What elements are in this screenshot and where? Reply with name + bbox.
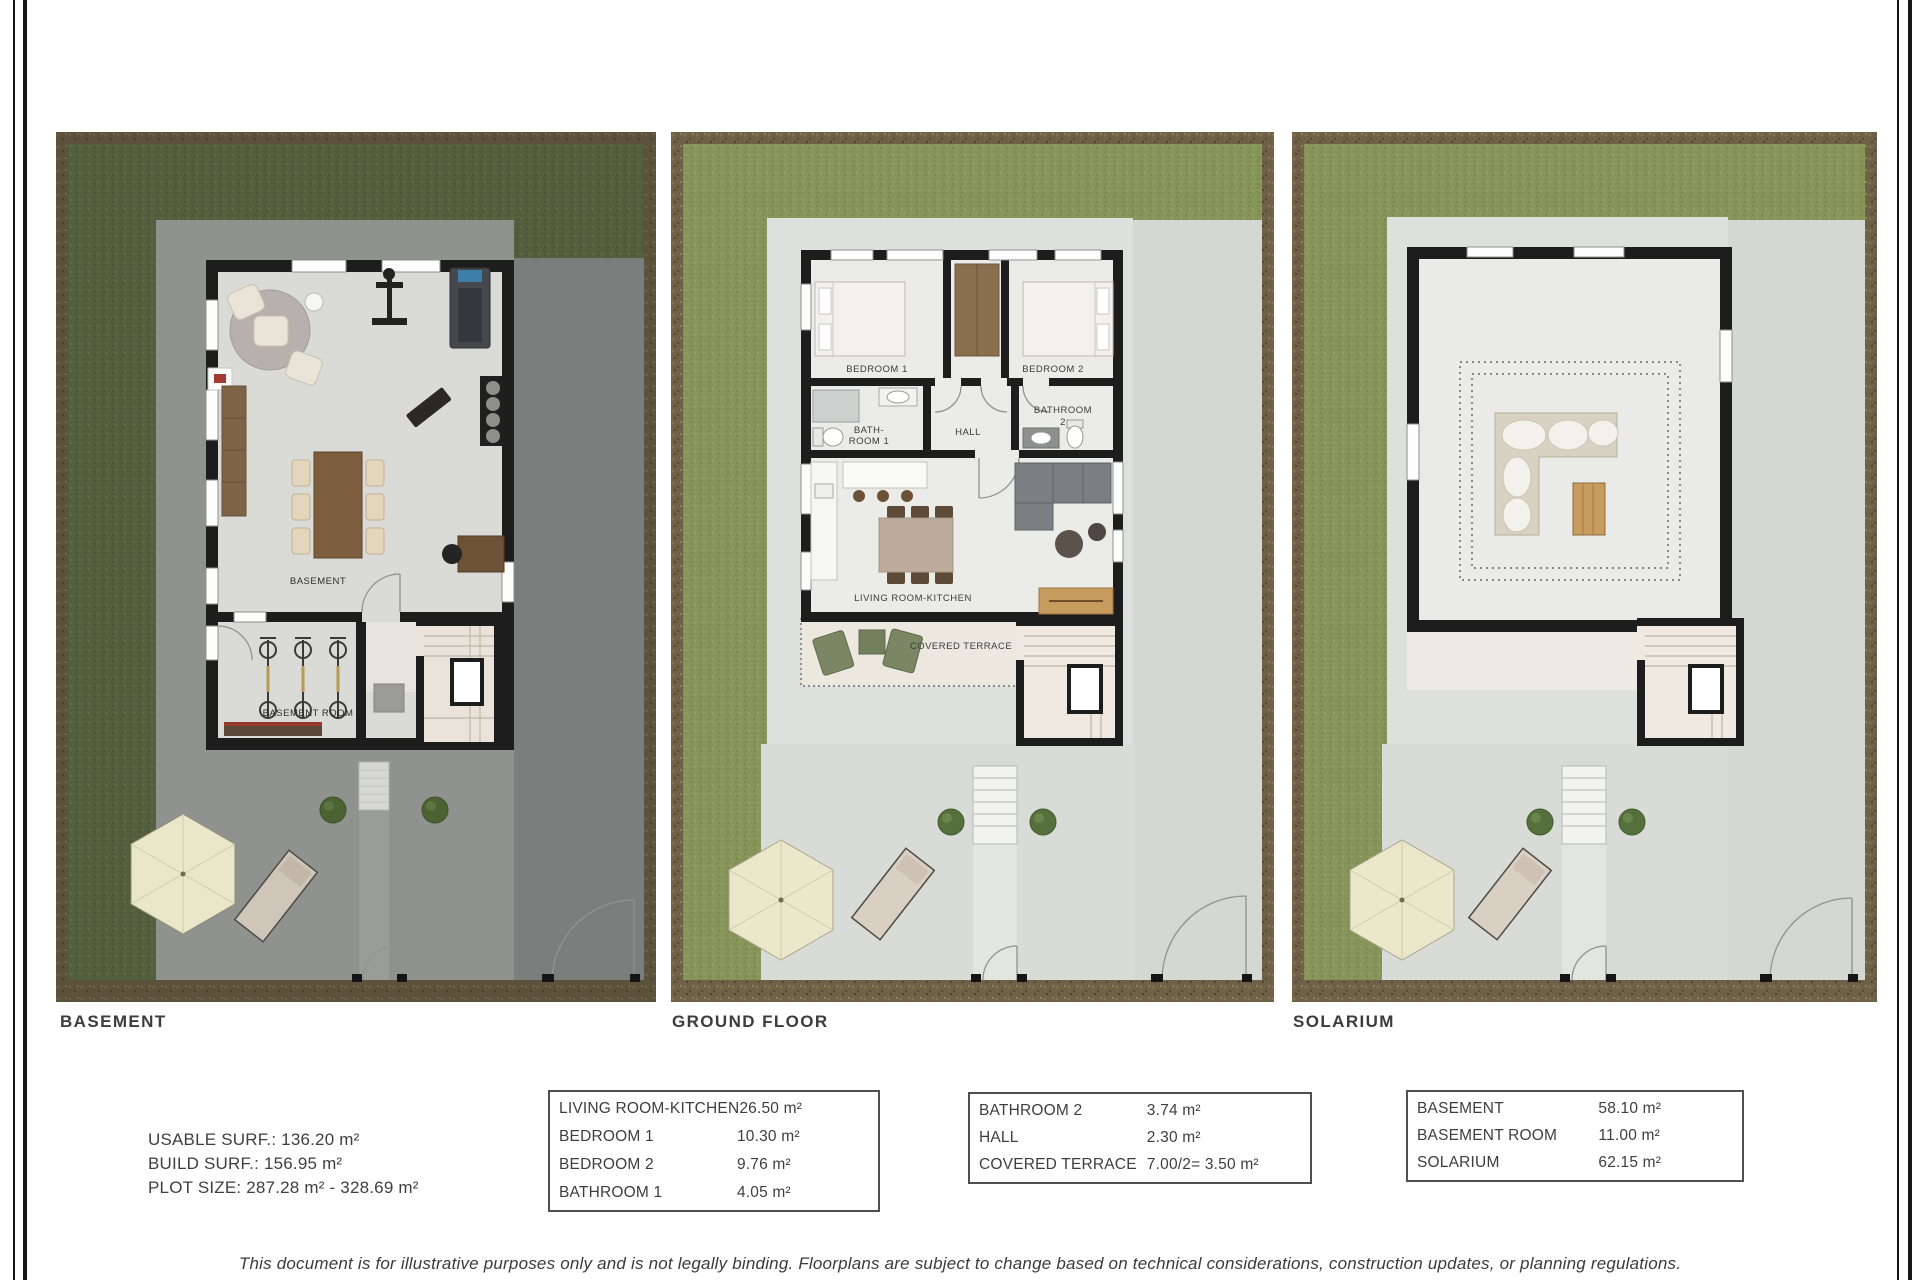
- armchair: [254, 316, 288, 346]
- terrace-table: [859, 630, 885, 654]
- room-label-bathroom2-line1: BATHROOM: [1034, 405, 1092, 416]
- caption-basement: BASEMENT: [60, 1012, 167, 1032]
- table-row: HALL2.30 m²: [970, 1129, 1310, 1147]
- table-row: BATHROOM 14.05 m²: [550, 1184, 878, 1202]
- solarium-floorplan-drawing: [1292, 132, 1877, 1002]
- ground-floor-area-table-2: BATHROOM 23.74 m² HALL2.30 m² COVERED TE…: [968, 1092, 1312, 1184]
- row-value: 3.74 m²: [1147, 1102, 1310, 1120]
- table-row: SOLARIUM62.15 m²: [1408, 1154, 1742, 1172]
- room-label-bathroom1-line1: BATH-: [854, 425, 884, 436]
- bush: [320, 797, 346, 823]
- driveway: [1728, 220, 1865, 980]
- outdoor-table: [1573, 483, 1605, 535]
- dining-set: [879, 506, 953, 584]
- row-value: 9.76 m²: [737, 1156, 878, 1174]
- stair-landing: [1069, 666, 1101, 712]
- row-label: BEDROOM 1: [550, 1128, 737, 1146]
- table-row: BEDROOM 29.76 m²: [550, 1156, 878, 1174]
- row-value: 10.30 m²: [737, 1128, 878, 1146]
- stairwell: [416, 618, 502, 750]
- walkway: [973, 844, 1017, 980]
- row-label: BEDROOM 2: [550, 1156, 737, 1174]
- room-label-hall: HALL: [955, 427, 981, 438]
- bush: [1030, 809, 1056, 835]
- driveway: [1133, 220, 1262, 980]
- wine-rack: [480, 376, 506, 446]
- basement-floorplan-drawing: BASEMENT BASEMENT ROOM: [56, 132, 656, 1002]
- row-value: 11.00 m²: [1598, 1127, 1742, 1145]
- row-value: 58.10 m²: [1598, 1100, 1742, 1118]
- room-label-bedroom1: BEDROOM 1: [846, 364, 908, 375]
- row-label: BASEMENT: [1408, 1100, 1598, 1118]
- room-label-bathroom2-line2: 2: [1060, 417, 1066, 428]
- bush: [422, 797, 448, 823]
- row-value: 2.30 m²: [1147, 1129, 1310, 1147]
- row-label: BASEMENT ROOM: [1408, 1127, 1598, 1145]
- row-value: 62.15 m²: [1598, 1154, 1742, 1172]
- row-label: COVERED TERRACE: [970, 1156, 1147, 1174]
- build-surface: BUILD SURF.: 156.95 m²: [148, 1152, 419, 1176]
- bush: [938, 809, 964, 835]
- surface-summary: USABLE SURF.: 136.20 m² BUILD SURF.: 156…: [148, 1128, 419, 1200]
- storage-box: [374, 684, 404, 712]
- treadmill: [450, 268, 490, 348]
- ground-floor-area-table: LIVING ROOM-KITCHEN26.50 m² BEDROOM 110.…: [548, 1090, 880, 1212]
- room-label-bedroom2: BEDROOM 2: [1022, 364, 1084, 375]
- legal-disclaimer: This document is for illustrative purpos…: [0, 1254, 1920, 1274]
- desk: [458, 536, 504, 572]
- room-label-basement: BASEMENT: [290, 576, 346, 587]
- bush: [1527, 809, 1553, 835]
- row-value: 4.05 m²: [737, 1184, 878, 1202]
- room-label-living: LIVING ROOM-KITCHEN: [854, 593, 972, 604]
- row-value: 7.00/2= 3.50 m²: [1147, 1156, 1310, 1174]
- vestibule-floor: [366, 622, 422, 692]
- table-row: LIVING ROOM-KITCHEN26.50 m²: [550, 1100, 878, 1118]
- bed-1: [815, 282, 905, 356]
- table-row: BATHROOM 23.74 m²: [970, 1102, 1310, 1120]
- room-label-basement-room: BASEMENT ROOM: [263, 708, 354, 719]
- outdoor-stair-block: [1016, 618, 1123, 746]
- row-label: HALL: [970, 1129, 1147, 1147]
- stair-landing: [452, 660, 482, 704]
- desk-chair: [442, 544, 462, 564]
- stair-landing: [1690, 666, 1722, 712]
- floorplan-page: { "document": { "disclaimer": "This docu…: [0, 0, 1920, 1280]
- dining-set: [292, 452, 384, 558]
- lower-terrace: [1407, 630, 1637, 690]
- table-row: BEDROOM 110.30 m²: [550, 1128, 878, 1146]
- basement-floorplan: BASEMENT BASEMENT ROOM: [56, 132, 656, 1002]
- row-label: BATHROOM 2: [970, 1102, 1147, 1120]
- bush: [1619, 809, 1645, 835]
- ground-floor-floorplan-drawing: BEDROOM 1 BEDROOM 2 BATH- ROOM 1 HALL BA…: [671, 132, 1274, 1002]
- row-label: BATHROOM 1: [550, 1184, 737, 1202]
- walkway: [1562, 844, 1606, 980]
- side-table: [305, 293, 323, 311]
- caption-ground-floor: GROUND FLOOR: [672, 1012, 829, 1032]
- solarium-floorplan: [1292, 132, 1877, 1002]
- covered-terrace: [801, 618, 1016, 686]
- outdoor-stair-block: [1637, 618, 1744, 746]
- table-row: BASEMENT58.10 m²: [1408, 1100, 1742, 1118]
- basement-solarium-area-table: BASEMENT58.10 m² BASEMENT ROOM11.00 m² S…: [1406, 1090, 1744, 1182]
- plot-size: PLOT SIZE: 287.28 m² - 328.69 m²: [148, 1176, 419, 1200]
- table-row: COVERED TERRACE7.00/2= 3.50 m²: [970, 1156, 1310, 1174]
- room-label-terrace: COVERED TERRACE: [910, 641, 1012, 652]
- row-value: 26.50 m²: [739, 1100, 878, 1118]
- table-row: BASEMENT ROOM11.00 m²: [1408, 1127, 1742, 1145]
- usable-surface: USABLE SURF.: 136.20 m²: [148, 1128, 419, 1152]
- ground-floor-floorplan: BEDROOM 1 BEDROOM 2 BATH- ROOM 1 HALL BA…: [671, 132, 1274, 1002]
- driveway-dark: [514, 258, 644, 980]
- room-label-bathroom1-line2: ROOM 1: [849, 436, 889, 447]
- caption-solarium: SOLARIUM: [1293, 1012, 1395, 1032]
- row-label: SOLARIUM: [1408, 1154, 1598, 1172]
- bed-2: [1023, 282, 1113, 356]
- solarium-roof-terrace: [1407, 247, 1732, 632]
- coffee-table: [1088, 523, 1106, 541]
- coffee-table: [1055, 530, 1083, 558]
- sideboard: [222, 386, 246, 516]
- row-label: LIVING ROOM-KITCHEN: [550, 1100, 739, 1118]
- page-border-left: [13, 0, 27, 1280]
- page-border-right: [1897, 0, 1912, 1280]
